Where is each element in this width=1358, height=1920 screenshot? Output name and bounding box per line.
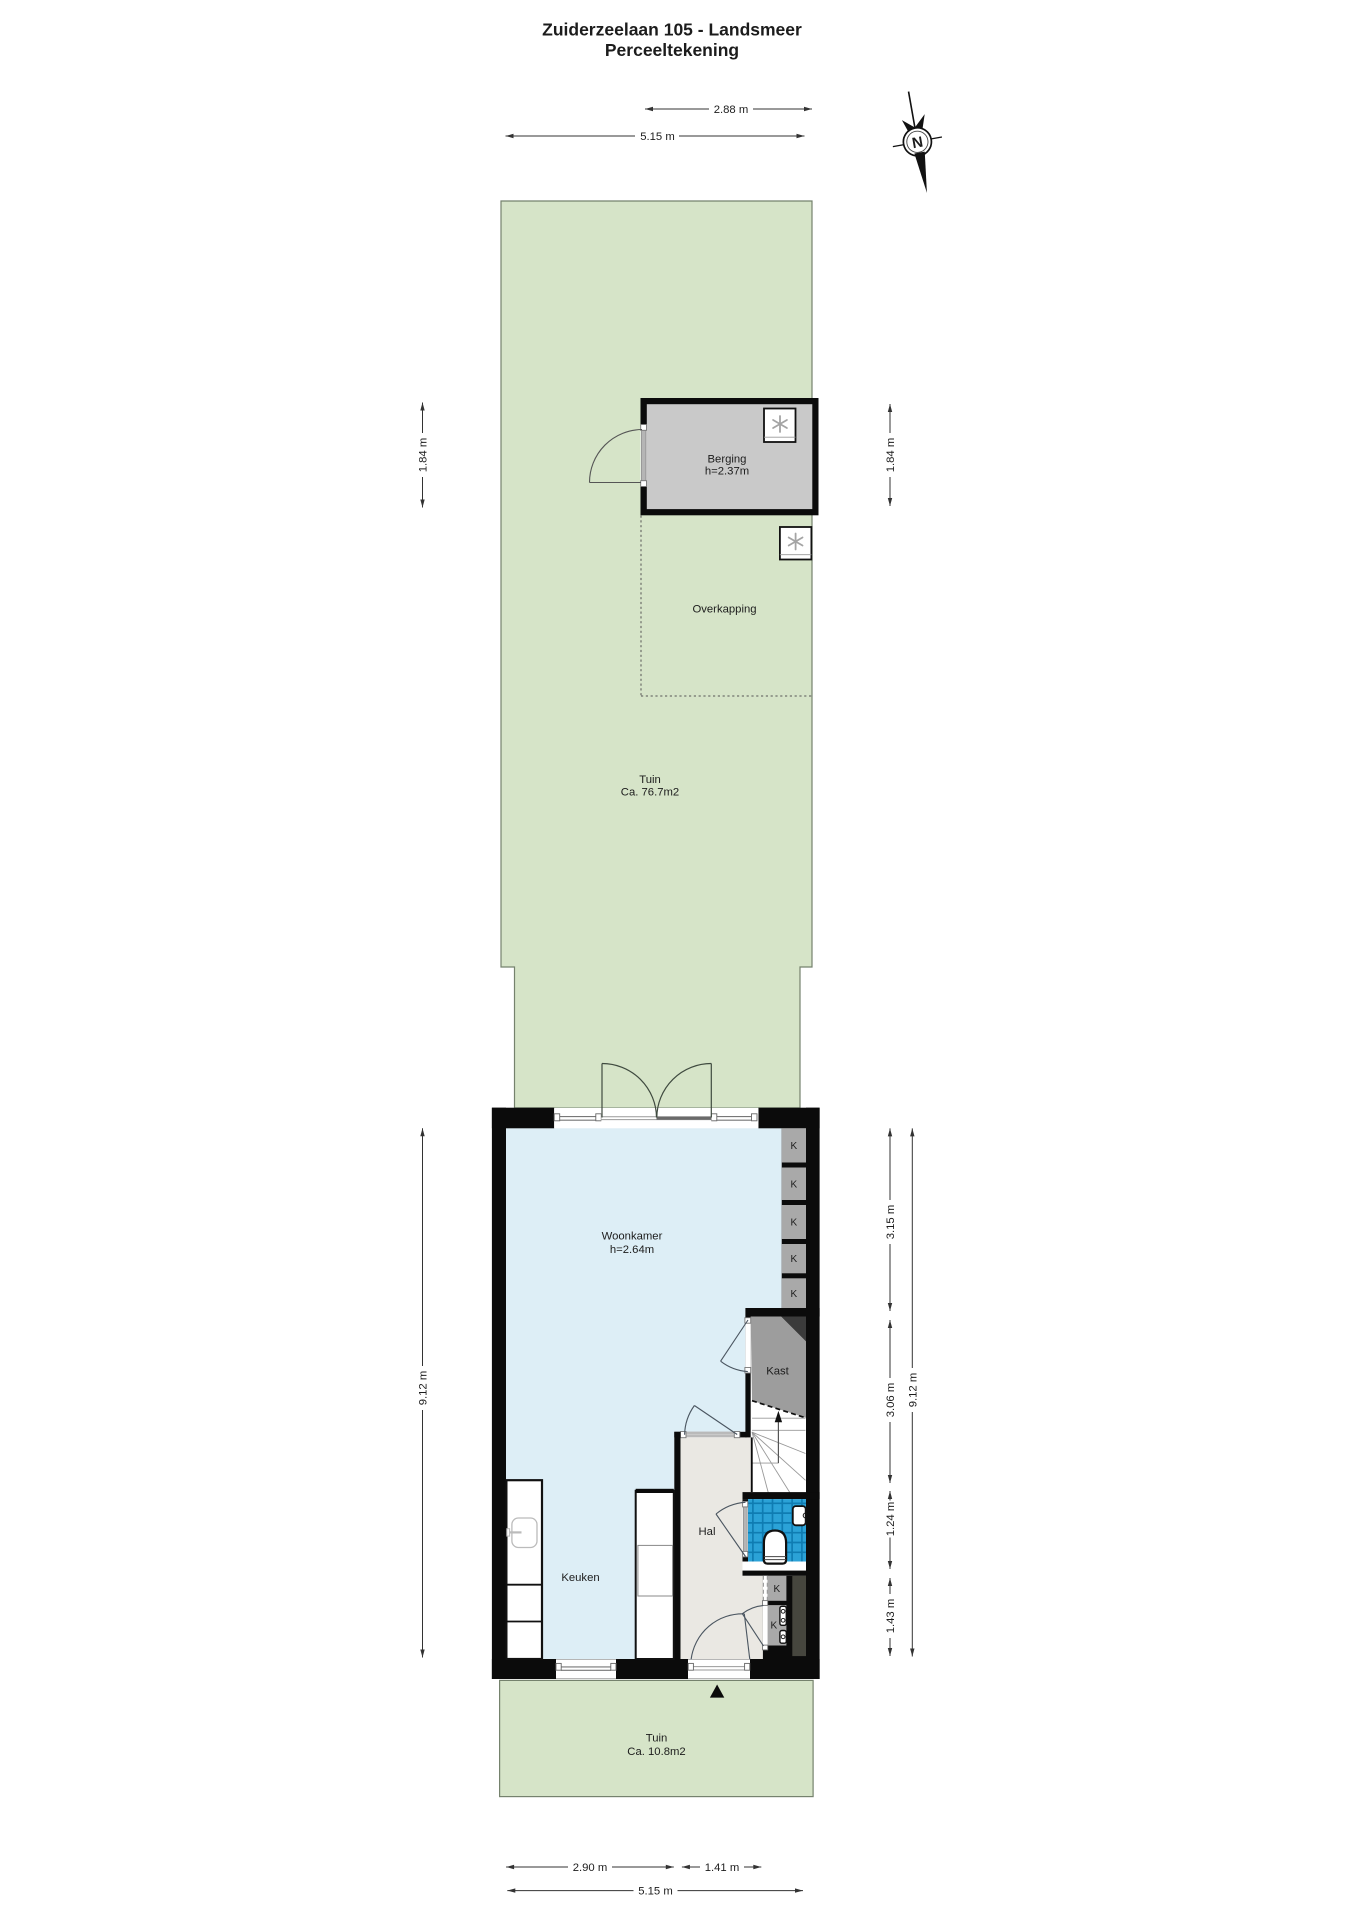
svg-text:3.15 m: 3.15 m — [885, 1205, 897, 1240]
svg-text:K: K — [790, 1141, 797, 1152]
svg-text:1.24 m: 1.24 m — [885, 1502, 897, 1537]
svg-text:K: K — [790, 1254, 797, 1265]
svg-text:1.41 m: 1.41 m — [705, 1862, 740, 1874]
svg-text:9.12 m: 9.12 m — [418, 1371, 430, 1406]
svg-text:K: K — [790, 1289, 797, 1300]
svg-text:Berging: Berging — [708, 454, 747, 466]
svg-text:K: K — [790, 1218, 797, 1229]
svg-text:Woonkamer: Woonkamer — [602, 1231, 663, 1243]
svg-text:Zuiderzeelaan 105 - Landsmeer: Zuiderzeelaan 105 - Landsmeer — [542, 20, 802, 40]
svg-text:1.43 m: 1.43 m — [885, 1599, 897, 1634]
svg-text:2.88 m: 2.88 m — [714, 104, 749, 116]
svg-text:h=2.37m: h=2.37m — [705, 466, 749, 478]
svg-text:K: K — [770, 1621, 777, 1632]
svg-text:Perceeltekening: Perceeltekening — [605, 40, 739, 60]
svg-text:Tuin: Tuin — [646, 1733, 668, 1745]
svg-text:5.15 m: 5.15 m — [640, 131, 675, 143]
svg-text:9.12 m: 9.12 m — [907, 1373, 919, 1408]
svg-text:1.84 m: 1.84 m — [885, 438, 897, 473]
svg-text:Overkapping: Overkapping — [692, 604, 756, 616]
svg-text:1.84 m: 1.84 m — [418, 438, 430, 473]
svg-text:Ca. 10.8m2: Ca. 10.8m2 — [627, 1746, 685, 1758]
svg-text:Ca. 76.7m2: Ca. 76.7m2 — [621, 787, 679, 799]
svg-text:5.15 m: 5.15 m — [638, 1886, 673, 1898]
svg-text:h=2.64m: h=2.64m — [610, 1244, 654, 1256]
svg-text:3.06 m: 3.06 m — [885, 1383, 897, 1418]
svg-text:Keuken: Keuken — [561, 1572, 599, 1584]
svg-text:Tuin: Tuin — [639, 774, 661, 786]
svg-text:2.90 m: 2.90 m — [573, 1862, 608, 1874]
svg-text:K: K — [790, 1180, 797, 1191]
svg-text:Kast: Kast — [766, 1366, 789, 1378]
svg-text:Hal: Hal — [699, 1526, 716, 1538]
svg-text:K: K — [773, 1584, 780, 1595]
